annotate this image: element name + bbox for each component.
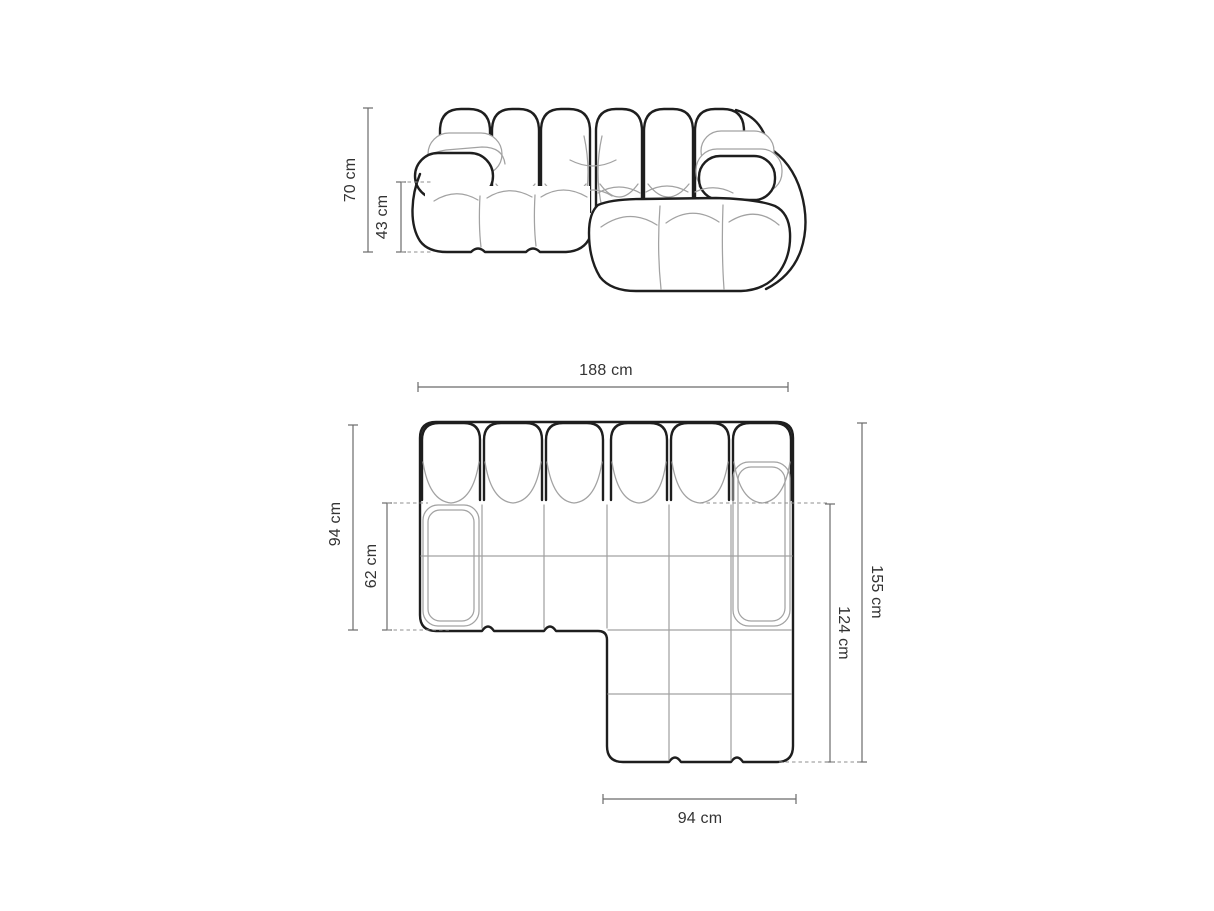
sofa-dimension-drawing: 70 cm 43 cm 188 cm 94 cm 62 cm 155 cm 12… xyxy=(0,0,1214,911)
dim-line-chaise-length xyxy=(825,504,835,762)
dim-label-front-seat-height: 43 cm xyxy=(375,195,391,240)
sofa-diagram-svg xyxy=(0,0,1214,911)
dim-label-length-right: 155 cm xyxy=(868,565,884,619)
top-view xyxy=(420,422,793,762)
front-view xyxy=(412,109,805,291)
dim-label-front-height: 70 cm xyxy=(343,158,359,203)
dim-line-front-height xyxy=(363,108,373,252)
dim-line-depth-seat xyxy=(382,503,392,630)
dim-line-chaise-width xyxy=(603,794,796,804)
dim-label-width-total: 188 cm xyxy=(579,363,633,379)
dim-label-depth-seat: 62 cm xyxy=(364,544,380,589)
dim-line-front-seat-height xyxy=(396,182,406,252)
dim-line-depth-total xyxy=(348,425,358,630)
front-chaise xyxy=(589,198,790,291)
dim-label-depth-total: 94 cm xyxy=(328,502,344,547)
dim-line-width-total xyxy=(418,382,788,392)
dim-line-length-right xyxy=(857,423,867,762)
dim-label-chaise-width: 94 cm xyxy=(678,811,723,827)
dim-label-chaise-length: 124 cm xyxy=(835,606,851,660)
